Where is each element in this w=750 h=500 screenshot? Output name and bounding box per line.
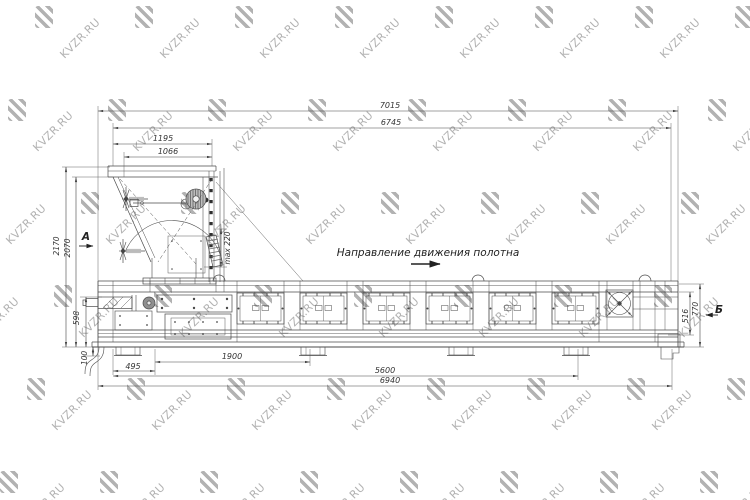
dim-foot-span: 1900 xyxy=(222,352,242,361)
dim-frame-length: 6745 xyxy=(381,118,401,127)
machine-view xyxy=(83,166,684,376)
dim-axis-height: 598 xyxy=(72,311,81,326)
direction-annotation: Направление движения полотна xyxy=(337,247,520,264)
technical-drawing: 7015 6745 1195 1066 2170 2070 598 100 51… xyxy=(0,0,750,500)
direction-label: Направление движения полотна xyxy=(337,247,520,259)
hopper xyxy=(108,166,303,284)
inspection-panels xyxy=(237,293,599,324)
dim-right-height: 770 xyxy=(691,302,700,317)
lifting-lug-icon xyxy=(213,275,651,281)
dim-hopper-height: 2070 xyxy=(63,238,72,257)
dim-overall-height: 2170 xyxy=(52,236,61,255)
dim-body-length: 5600 xyxy=(375,366,395,375)
support-feet xyxy=(85,347,590,376)
view-label-a: А xyxy=(81,231,90,243)
dim-max-clearance: max 220 xyxy=(223,231,232,264)
dim-overall-length: 7015 xyxy=(380,101,400,110)
drawing-sheet: KVZR.RUKVZR.RUKVZR.RUKVZR.RUKVZR.RUKVZR.… xyxy=(0,0,750,500)
view-label-b: Б xyxy=(715,304,723,316)
fan-section xyxy=(606,290,680,359)
conveyor-body xyxy=(92,275,684,347)
dim-belt-height: 516 xyxy=(681,309,690,324)
view-labels: А Б xyxy=(79,231,723,316)
dim-foot-offset: 495 xyxy=(125,362,140,371)
dim-base-length: 6940 xyxy=(380,376,400,385)
dim-base-height: 100 xyxy=(80,351,89,366)
dim-hopper-width-inner: 1066 xyxy=(158,147,178,156)
handwheel-icon xyxy=(122,187,148,211)
drive-section xyxy=(83,295,232,339)
dim-hopper-width-outer: 1195 xyxy=(153,134,173,143)
handwheel-icon xyxy=(119,239,145,263)
